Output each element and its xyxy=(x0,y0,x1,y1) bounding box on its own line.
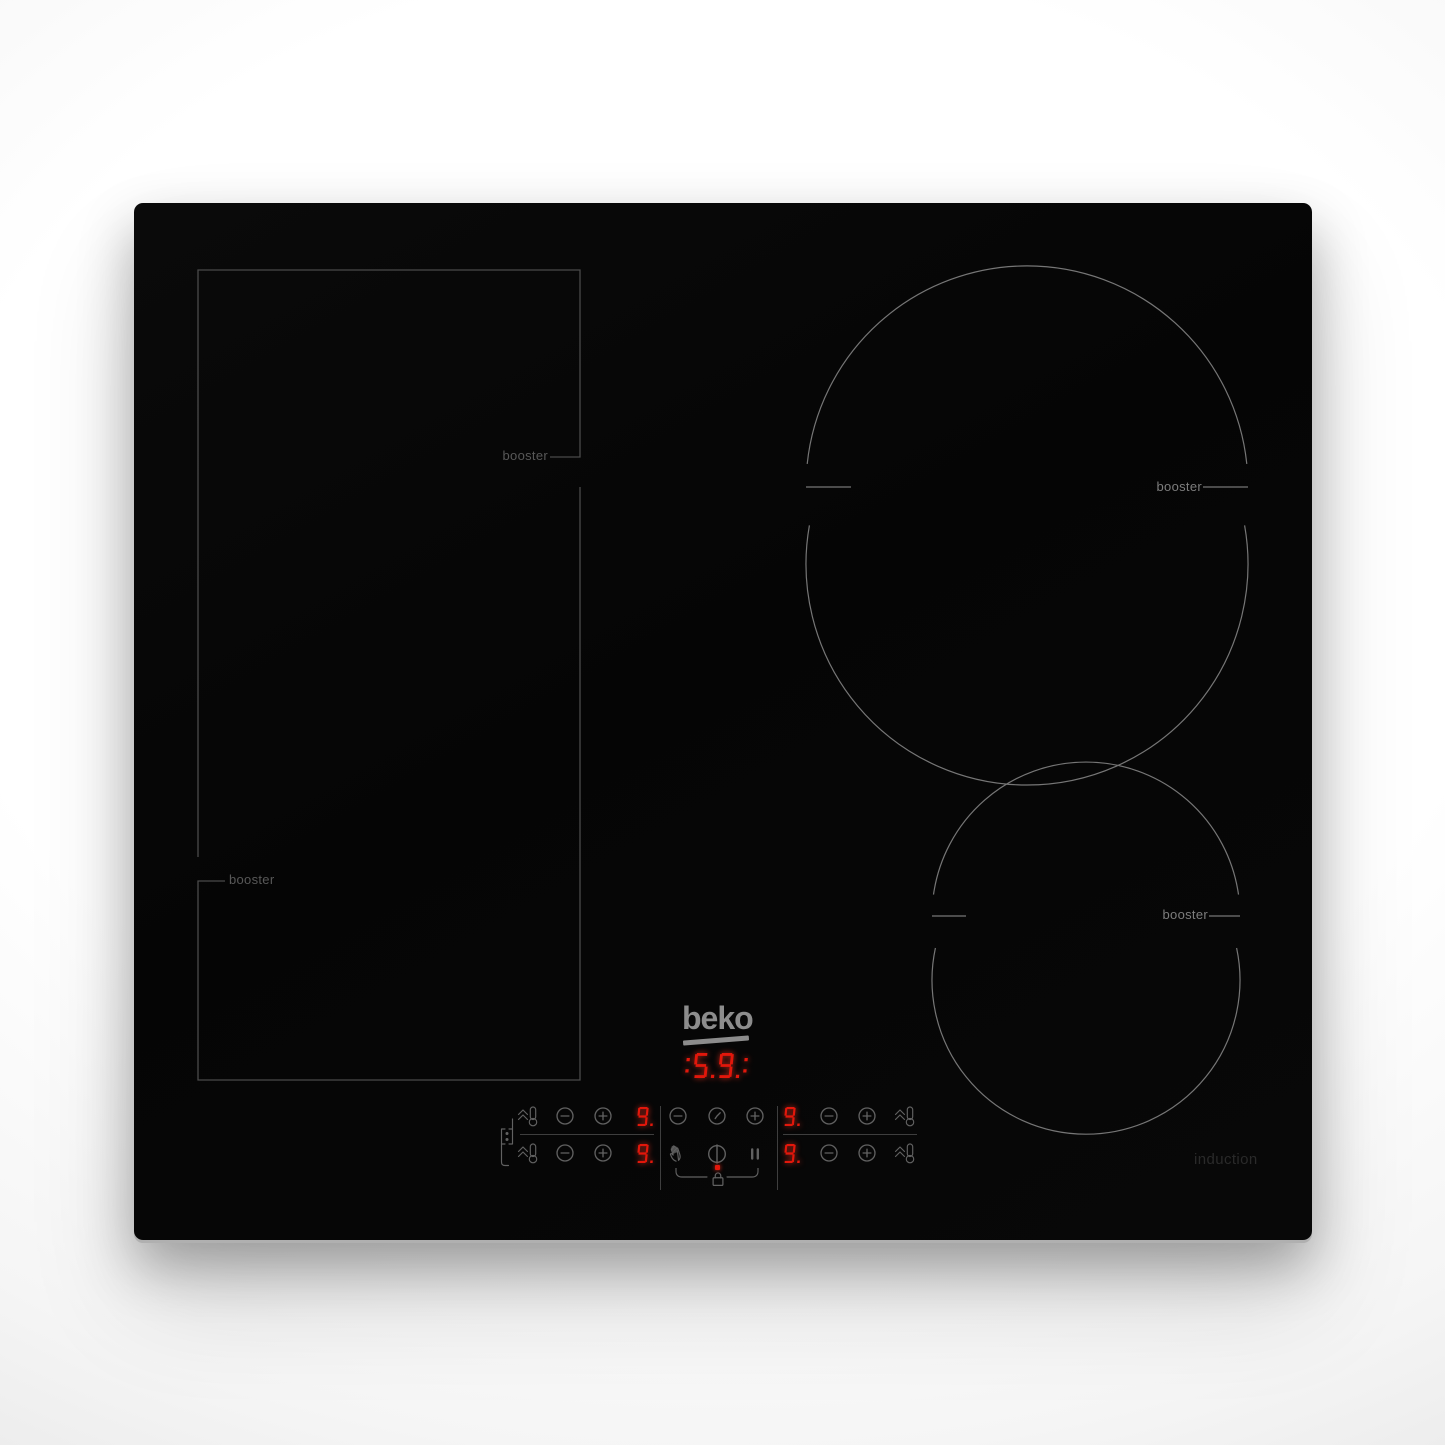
zone-bottom-right-lower-arc xyxy=(932,948,1240,1134)
minus-icon xyxy=(669,1107,688,1126)
minus-icon xyxy=(556,1107,575,1126)
zone-power-display-left-bottom xyxy=(635,1144,658,1163)
minus-icon xyxy=(556,1144,575,1163)
power-button[interactable] xyxy=(707,1144,727,1164)
zone-top-right-upper-arc xyxy=(807,266,1247,464)
lock-indicator xyxy=(710,1171,727,1188)
plus-icon xyxy=(858,1144,877,1163)
pause-icon xyxy=(746,1145,765,1164)
booster-button-right-top[interactable] xyxy=(894,1106,917,1127)
bridge-zones-button[interactable] xyxy=(496,1118,518,1170)
timer-display xyxy=(683,1053,754,1078)
booster-label-flex-bottom: booster xyxy=(229,873,289,886)
timer-minus-button[interactable] xyxy=(669,1107,688,1126)
booster-label-zone-top-right: booster xyxy=(1150,480,1202,493)
minus-button-left-top[interactable] xyxy=(556,1107,575,1126)
booster-label-zone-bottom-right: booster xyxy=(1156,908,1208,921)
zone-power-display-right-top xyxy=(782,1107,805,1126)
zone-top-right-lower-arc xyxy=(806,525,1248,785)
minus-icon xyxy=(820,1107,839,1126)
timer-clock-button[interactable] xyxy=(708,1107,727,1126)
hob-glass-panel: booster booster booster booster beko xyxy=(134,203,1312,1240)
flex-zone-outline-lower xyxy=(198,487,580,1080)
plus-button-right-bottom[interactable] xyxy=(858,1144,877,1163)
minus-button-right-top[interactable] xyxy=(820,1107,839,1126)
beko-logo: beko xyxy=(682,1002,750,1043)
booster-thermometer-icon xyxy=(517,1143,540,1164)
plus-icon xyxy=(594,1107,613,1126)
beko-logo-text: beko xyxy=(682,1002,750,1034)
plus-button-left-bottom[interactable] xyxy=(594,1144,613,1163)
hand-icon xyxy=(667,1143,687,1163)
control-divider-left xyxy=(660,1106,661,1190)
key-lock-hand-button[interactable] xyxy=(667,1143,687,1163)
control-row-divider-right xyxy=(783,1134,917,1135)
booster-thermometer-icon xyxy=(517,1106,540,1127)
power-icon xyxy=(707,1144,727,1164)
pause-button[interactable] xyxy=(746,1145,765,1164)
clock-icon xyxy=(708,1107,727,1126)
plus-icon xyxy=(858,1107,877,1126)
booster-button-left-bottom[interactable] xyxy=(517,1143,540,1164)
bridge-zones-icon xyxy=(496,1118,518,1170)
minus-button-right-bottom[interactable] xyxy=(820,1144,839,1163)
minus-button-left-bottom[interactable] xyxy=(556,1144,575,1163)
plus-icon xyxy=(746,1107,765,1126)
padlock-icon xyxy=(710,1171,727,1188)
zone-power-display-left-top xyxy=(635,1107,658,1126)
zone-bottom-right-upper-arc xyxy=(934,762,1239,895)
booster-thermometer-icon xyxy=(894,1106,917,1127)
plus-icon xyxy=(594,1144,613,1163)
booster-label-flex-top: booster xyxy=(496,449,548,462)
minus-icon xyxy=(820,1144,839,1163)
cooking-zone-outlines xyxy=(134,203,1312,1240)
timer-plus-button[interactable] xyxy=(746,1107,765,1126)
induction-label: induction xyxy=(1194,1151,1258,1168)
booster-thermometer-icon xyxy=(894,1143,917,1164)
booster-button-left-top[interactable] xyxy=(517,1106,540,1127)
plus-button-right-top[interactable] xyxy=(858,1107,877,1126)
control-divider-right xyxy=(777,1106,778,1190)
control-row-divider-left xyxy=(520,1134,654,1135)
plus-button-left-top[interactable] xyxy=(594,1107,613,1126)
lock-indicator-led xyxy=(715,1165,720,1170)
flex-zone-outline-upper xyxy=(198,270,580,857)
zone-power-display-right-bottom xyxy=(782,1144,805,1163)
booster-button-right-bottom[interactable] xyxy=(894,1143,917,1164)
